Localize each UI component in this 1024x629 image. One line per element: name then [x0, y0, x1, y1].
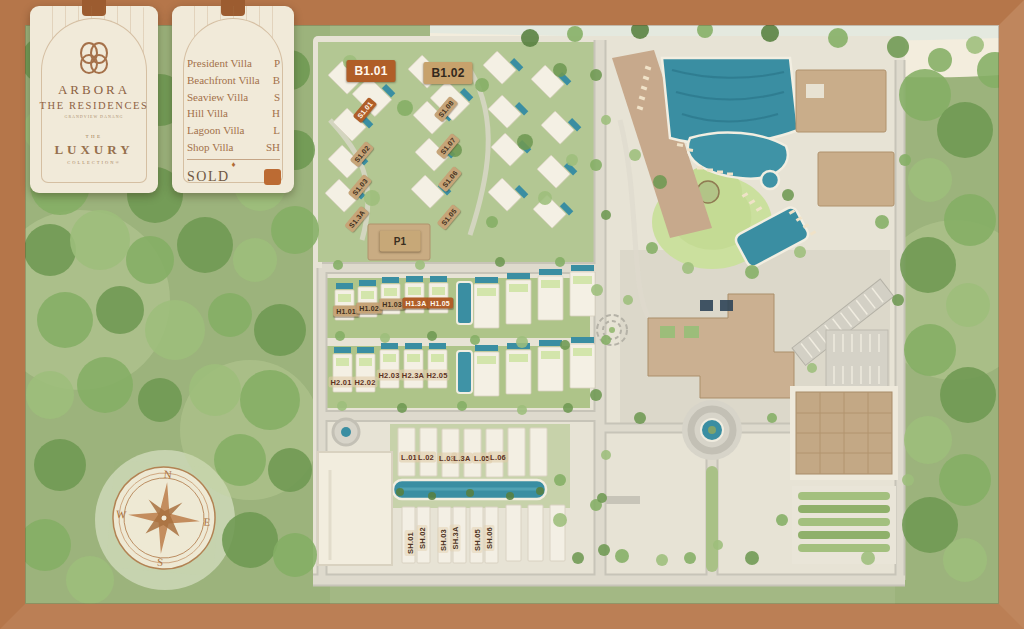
legend-sold-row: SOLD [187, 169, 281, 185]
diamond-icon: ♦ [227, 160, 239, 169]
plot-label-sh.3a[interactable]: SH.3A [450, 524, 461, 551]
legend-item-code: SH [266, 141, 280, 153]
plot-label-b1.02[interactable]: B1.02 [423, 62, 472, 84]
legend-item-l: Lagoon VillaL [187, 124, 280, 136]
legend-item-code: L [273, 124, 280, 136]
plot-label-h1.02[interactable]: H1.02 [356, 303, 382, 314]
legend-item-code: S [274, 91, 280, 103]
plot-label-sh.05[interactable]: SH.05 [472, 527, 483, 553]
legend-divider: ♦ [187, 159, 280, 168]
brand-tagline: GRANDVIEW DANANG [65, 114, 124, 119]
legend-item-s: Seaview VillaS [187, 91, 280, 103]
brand-card: ARBORA THE RESIDENCES GRANDVIEW DANANG T… [30, 6, 158, 193]
plot-label-h2.3a[interactable]: H2.3A [400, 370, 426, 381]
plot-label-sh.06[interactable]: SH.06 [484, 525, 495, 551]
legend-item-label: Beachfront Villa [187, 74, 260, 86]
plot-label-s1.3a[interactable]: S1.3A [344, 205, 369, 232]
legend-item-label: President Villa [187, 57, 252, 69]
plot-label-h1.3a[interactable]: H1.3A [403, 298, 430, 309]
plot-label-l.06[interactable]: L.06 [488, 452, 508, 463]
plot-label-h2.05[interactable]: H2.05 [424, 370, 449, 381]
legend-item-sh: Shop VillaSH [187, 141, 280, 153]
plot-label-h1.03[interactable]: H1.03 [379, 299, 405, 310]
plot-label-sh.02[interactable]: SH.02 [417, 525, 428, 551]
legend-item-label: Hill Villa [187, 107, 228, 119]
plot-label-l.02[interactable]: L.02 [416, 452, 436, 463]
legend-item-code: H [272, 107, 280, 119]
plot-label-s1.05[interactable]: S1.05 [437, 204, 462, 230]
legend-item-code: B [273, 74, 280, 86]
legend-item-label: Seaview Villa [187, 91, 248, 103]
plot-label-h1.05[interactable]: H1.05 [427, 298, 453, 309]
plot-label-h1.01[interactable]: H1.01 [333, 306, 359, 317]
plot-label-s1.02[interactable]: S1.02 [350, 141, 375, 167]
legend-item-label: Shop Villa [187, 141, 234, 153]
plot-label-l.3a[interactable]: L.3A [451, 453, 472, 464]
legend-item-b: Beachfront VillaB [187, 74, 280, 86]
brand-name: ARBORA [58, 82, 130, 98]
plot-label-h2.01[interactable]: H2.01 [328, 377, 353, 388]
plot-label-s1.08[interactable]: S1.08 [434, 96, 459, 122]
plot-label-s1.06[interactable]: S1.06 [438, 166, 463, 192]
sold-color-swatch [264, 169, 281, 185]
plot-label-b1.01[interactable]: B1.01 [346, 60, 395, 82]
plot-label-s1.01[interactable]: S1.01 [353, 97, 378, 123]
legend-rows: President VillaPBeachfront VillaBSeaview… [172, 6, 294, 153]
legend-item-h: Hill VillaH [187, 107, 280, 119]
plot-label-s1.07[interactable]: S1.07 [436, 133, 461, 159]
legend-item-label: Lagoon Villa [187, 124, 245, 136]
collection-sub: COLLECTION® [67, 160, 121, 165]
collection-the: THE [85, 134, 102, 139]
plot-label-p1[interactable]: P1 [380, 231, 421, 252]
plot-label-h2.03[interactable]: H2.03 [376, 370, 401, 381]
brand-emblem-icon [74, 40, 114, 76]
brand-subname: THE RESIDENCES [39, 100, 148, 111]
sold-label: SOLD [187, 169, 230, 185]
legend-card: President VillaPBeachfront VillaBSeaview… [172, 6, 294, 193]
legend-item-code: P [274, 57, 280, 69]
legend-item-p: President VillaP [187, 57, 280, 69]
collection-name: LUXURY [54, 142, 133, 158]
plot-label-sh.03[interactable]: SH.03 [438, 527, 449, 553]
plot-label-h2.02[interactable]: H2.02 [352, 377, 377, 388]
plot-label-s1.03[interactable]: S1.03 [348, 174, 373, 200]
plot-label-sh.01[interactable]: SH.01 [405, 530, 416, 556]
